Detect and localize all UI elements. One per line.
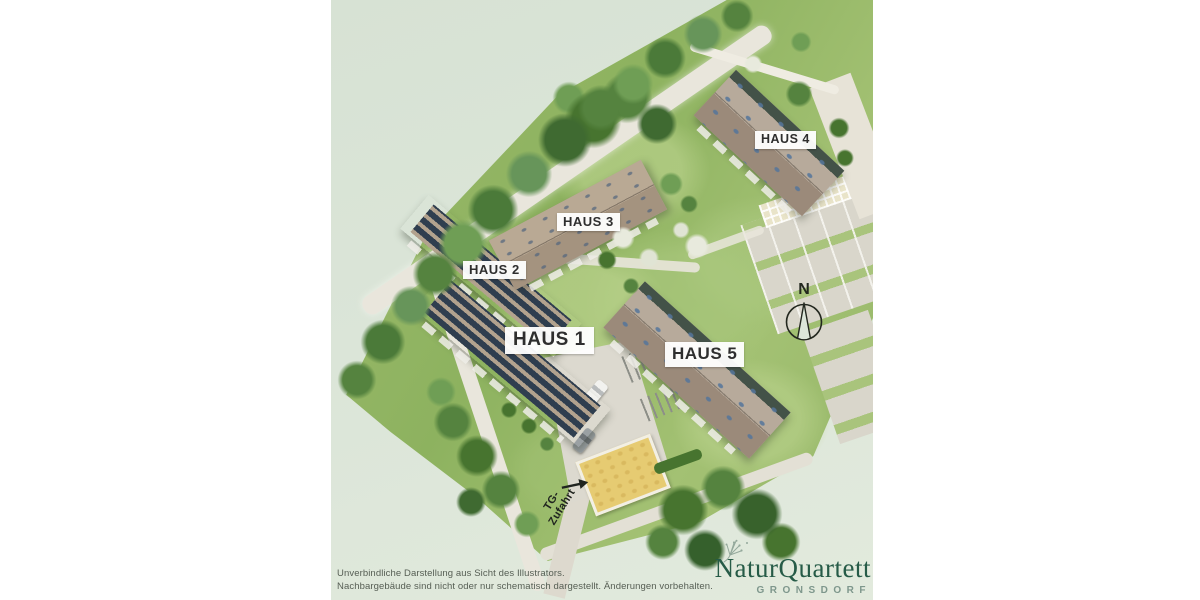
haus-5-label[interactable]: HAUS 5 <box>665 342 744 367</box>
haus-2-label[interactable]: HAUS 2 <box>463 261 526 279</box>
site-plan-illustration: HAUS 4 HAUS 3 HAUS 2 HAUS 1 HAUS 5 N TG-… <box>331 0 873 600</box>
compass: N <box>780 282 828 342</box>
haus-3-label[interactable]: HAUS 3 <box>557 213 620 231</box>
disclaimer-line2: Nachbargebäude sind nicht oder nur schem… <box>337 581 713 594</box>
brand-name: NaturQuartett <box>715 555 871 582</box>
compass-icon <box>783 300 825 342</box>
disclaimer: Unverbindliche Darstellung aus Sicht des… <box>337 568 713 593</box>
disclaimer-line1: Unverbindliche Darstellung aus Sicht des… <box>337 568 713 581</box>
brand-location-text: GRONSDORF <box>715 585 871 596</box>
haus-4-label[interactable]: HAUS 4 <box>755 131 816 149</box>
page: HAUS 4 HAUS 3 HAUS 2 HAUS 1 HAUS 5 N TG-… <box>0 0 1200 600</box>
compass-north-label: N <box>780 282 828 298</box>
haus-1-label[interactable]: HAUS 1 <box>505 327 594 354</box>
dandelion-icon <box>721 539 751 563</box>
brand-logo: NaturQuartett GRONSDORF <box>715 555 871 596</box>
